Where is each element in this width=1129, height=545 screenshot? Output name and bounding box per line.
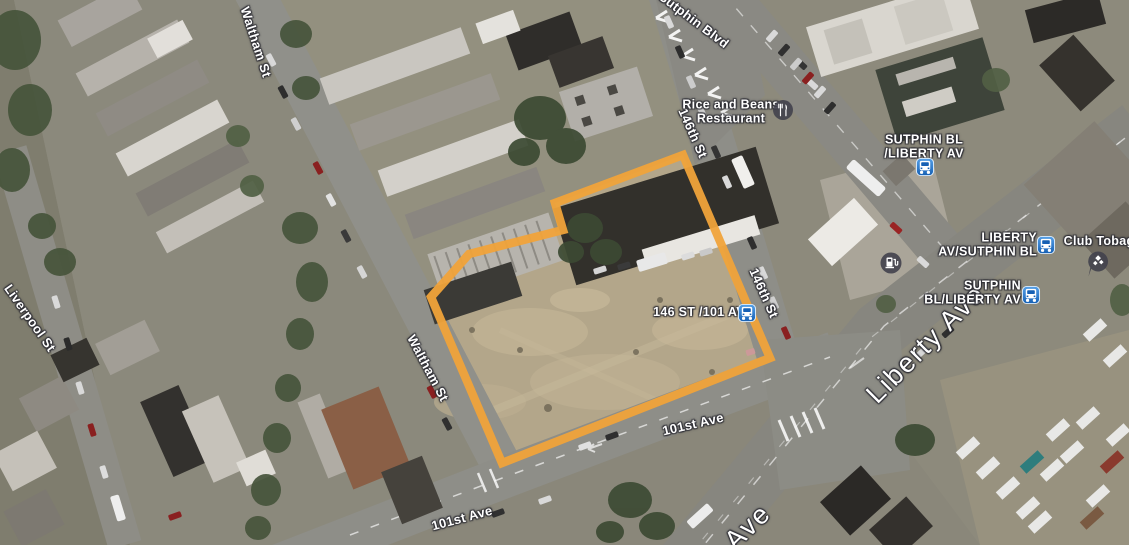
bus-stop-icon[interactable]	[1022, 286, 1041, 305]
aerial-map-canvas[interactable]: Waltham St Waltham St Liverpool St Sutph…	[0, 0, 1129, 545]
gas-station-icon[interactable]	[880, 252, 902, 274]
street-label-101st-bottom: 101st Ave	[430, 503, 494, 534]
nightlife-icon[interactable]	[1087, 251, 1110, 278]
street-label-waltham-mid: Waltham St	[404, 332, 452, 404]
bus-stop-icon[interactable]	[916, 158, 935, 177]
stop3-line2: BL/LIBERTY AV	[924, 293, 1021, 307]
bus-stop-icon[interactable]	[1037, 236, 1056, 255]
transit-stop-label-3: SUTPHIN BL/LIBERTY AV	[924, 279, 1021, 308]
stop3-line1: SUTPHIN	[964, 279, 1021, 293]
street-label-sutphin-blvd: Sutphin Blvd	[656, 0, 732, 51]
street-label-101st-mid: 101st Ave	[661, 410, 725, 439]
restaurant-name-line2: Restaurant	[697, 112, 765, 126]
stop2-line2: AV/SUTPHIN BL	[938, 245, 1037, 259]
street-label-liberty-ave-partial: Ave	[719, 498, 778, 545]
map-labels-layer: Waltham St Waltham St Liverpool St Sutph…	[0, 0, 1129, 545]
street-label-liverpool: Liverpool St	[1, 281, 58, 354]
poi-label-restaurant[interactable]: Rice and Beans Restaurant	[682, 98, 779, 127]
restaurant-name-line1: Rice and Beans	[682, 98, 779, 112]
transit-stop-label-4: 146 ST /101 AV	[653, 305, 745, 319]
stop1-line1: SUTPHIN BL	[885, 133, 963, 147]
transit-stop-label-2: LIBERTY AV/SUTPHIN BL	[938, 231, 1037, 260]
street-label-waltham-top: Waltham St	[238, 5, 275, 79]
restaurant-icon[interactable]	[773, 100, 794, 121]
stop2-line1: LIBERTY	[981, 231, 1037, 245]
poi-label-club-tobago[interactable]: Club Tobago	[1064, 234, 1129, 248]
bus-stop-icon[interactable]	[738, 304, 757, 323]
